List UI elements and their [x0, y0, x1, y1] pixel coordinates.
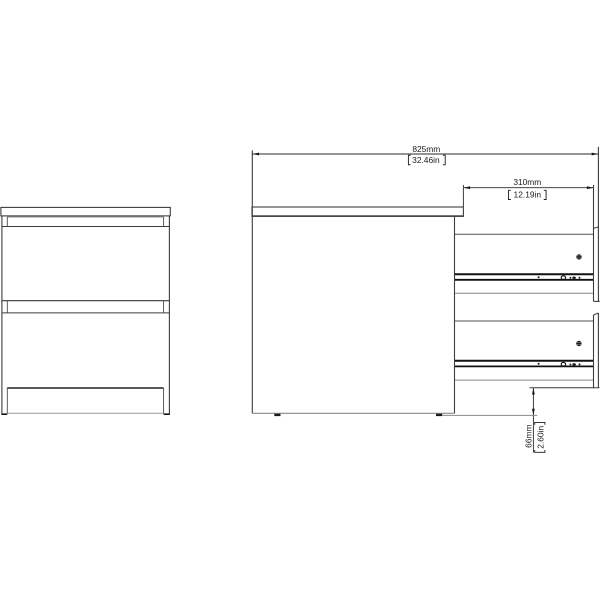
svg-text:825mm: 825mm — [412, 144, 440, 154]
svg-text:32.46in: 32.46in — [412, 155, 440, 165]
svg-text:66mm: 66mm — [523, 425, 533, 448]
svg-text:12.19in: 12.19in — [514, 189, 542, 199]
svg-text:310mm: 310mm — [513, 177, 541, 187]
svg-text:2.60in: 2.60in — [536, 426, 546, 449]
